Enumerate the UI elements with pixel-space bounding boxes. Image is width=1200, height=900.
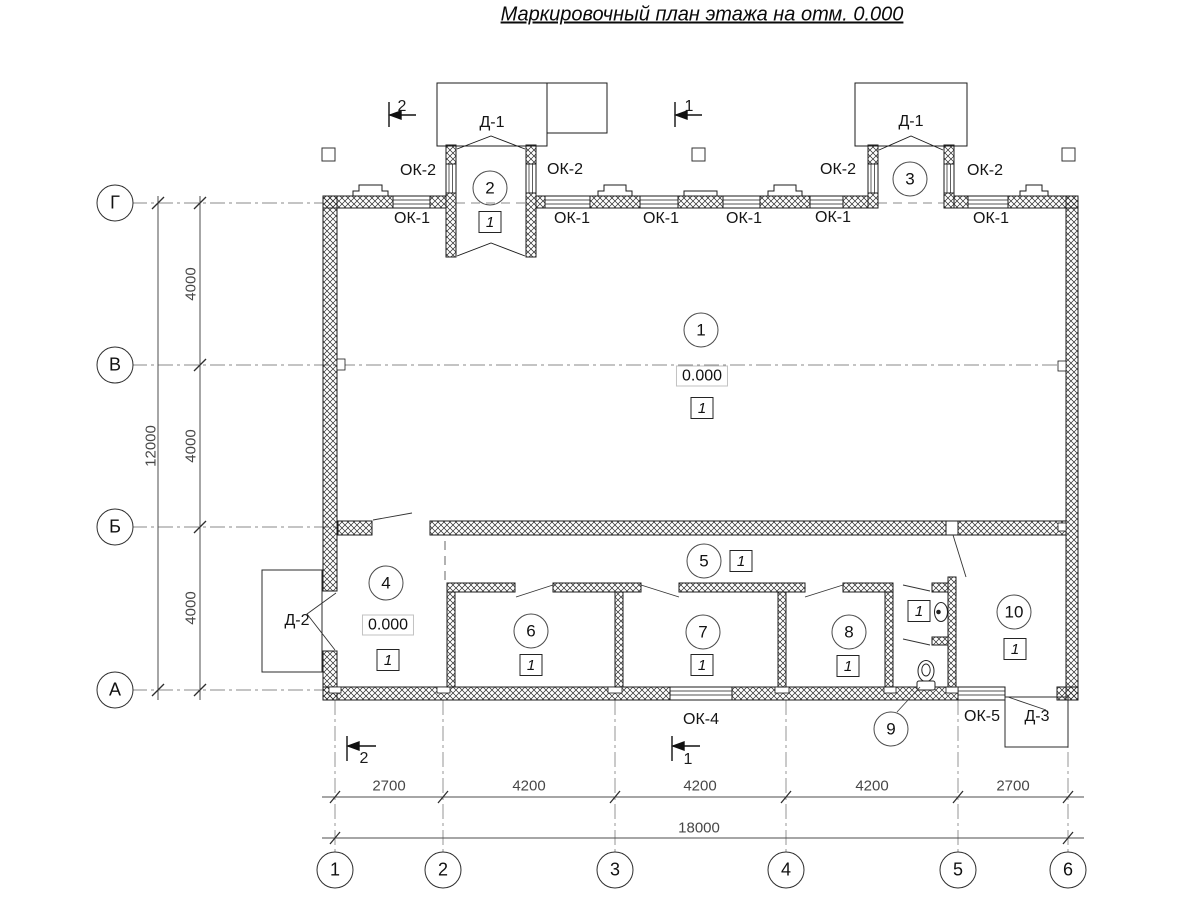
dimension-label: 4000 — [184, 429, 199, 462]
window-label-ok5: ОК-5 — [964, 709, 1000, 725]
window-label-ok2: ОК-2 — [820, 162, 856, 178]
dimension-label: 2700 — [996, 779, 1029, 794]
axis-bubble-col-1: 1 — [317, 852, 354, 889]
window-label-ok1: ОК-1 — [815, 210, 851, 226]
dimension-label: 4200 — [512, 779, 545, 794]
floor-type-mark: 1 — [1004, 638, 1027, 660]
dimension-total-label: 12000 — [144, 425, 159, 467]
floor-plan-linework — [0, 0, 1200, 900]
axis-bubble-row-g: Г — [97, 185, 134, 222]
room-number-bubble: 10 — [997, 595, 1032, 630]
elevation-mark: 0.000 — [362, 615, 414, 636]
axis-bubble-col-4: 4 — [768, 852, 805, 889]
floor-type-mark: 1 — [520, 654, 543, 676]
window-label-ok1: ОК-1 — [973, 211, 1009, 227]
floor-type-mark: 1 — [730, 550, 753, 572]
floor-type-mark: 1 — [377, 649, 400, 671]
room-number-bubble: 6 — [514, 614, 549, 649]
window-label-ok1: ОК-1 — [554, 211, 590, 227]
room-number-bubble: 1 — [684, 313, 719, 348]
window-label-ok1: ОК-1 — [394, 211, 430, 227]
door-label-d3: Д-3 — [1024, 709, 1049, 725]
window-label-ok1: ОК-1 — [643, 211, 679, 227]
floor-type-mark: 1 — [691, 397, 714, 419]
door-swing — [457, 243, 525, 256]
room-number-bubble: 3 — [893, 162, 928, 197]
page-title: Маркировочный план этажа на отм. 0.000 — [501, 4, 904, 27]
dimension-label: 4200 — [683, 779, 716, 794]
axis-bubble-col-2: 2 — [425, 852, 462, 889]
dimension-label: 4000 — [184, 591, 199, 624]
section-cut-label: 1 — [684, 752, 693, 768]
section-cut-label: 2 — [360, 751, 369, 767]
window-label-ok2: ОК-2 — [547, 162, 583, 178]
floor-type-mark: 1 — [479, 211, 502, 233]
door-label-d1: Д-1 — [898, 114, 923, 130]
room-number-bubble: 9 — [874, 712, 909, 747]
window-label-ok2: ОК-2 — [967, 163, 1003, 179]
section-cut-label: 2 — [398, 99, 407, 115]
section-cut-label: 1 — [685, 99, 694, 115]
drawing-sheet: Маркировочный план этажа на отм. 0.000 Г… — [0, 0, 1200, 900]
floor-type-mark: 1 — [837, 655, 860, 677]
room-number-bubble: 7 — [686, 615, 721, 650]
dimension-label: 4200 — [855, 779, 888, 794]
elevation-mark: 0.000 — [676, 366, 728, 387]
axis-bubble-row-v: В — [97, 347, 134, 384]
axis-bubble-row-b: Б — [97, 509, 134, 546]
axis-bubble-row-a: А — [97, 672, 134, 709]
door-swing — [457, 136, 525, 149]
dimension-lines — [152, 196, 1084, 844]
dimension-total-label: 18000 — [678, 821, 720, 836]
axis-bubble-col-3: 3 — [597, 852, 634, 889]
room-number-bubble: 8 — [832, 615, 867, 650]
room-number-bubble: 2 — [473, 171, 508, 206]
door-label-d2: Д-2 — [284, 613, 309, 629]
floor-type-mark: 1 — [908, 600, 931, 622]
window-label-ok4: ОК-4 — [683, 712, 719, 728]
dimension-label: 4000 — [184, 267, 199, 300]
reference-squares — [322, 148, 1075, 161]
porch-outline — [547, 83, 607, 133]
floor-type-mark: 1 — [691, 654, 714, 676]
door-label-d1: Д-1 — [479, 115, 504, 131]
room-number-bubble: 4 — [369, 566, 404, 601]
dimension-label: 2700 — [372, 779, 405, 794]
door-swing — [879, 136, 943, 150]
axis-bubble-col-6: 6 — [1050, 852, 1087, 889]
room-number-bubble: 5 — [687, 544, 722, 579]
window-label-ok2: ОК-2 — [400, 163, 436, 179]
axis-bubble-col-5: 5 — [940, 852, 977, 889]
window-label-ok1: ОК-1 — [726, 211, 762, 227]
